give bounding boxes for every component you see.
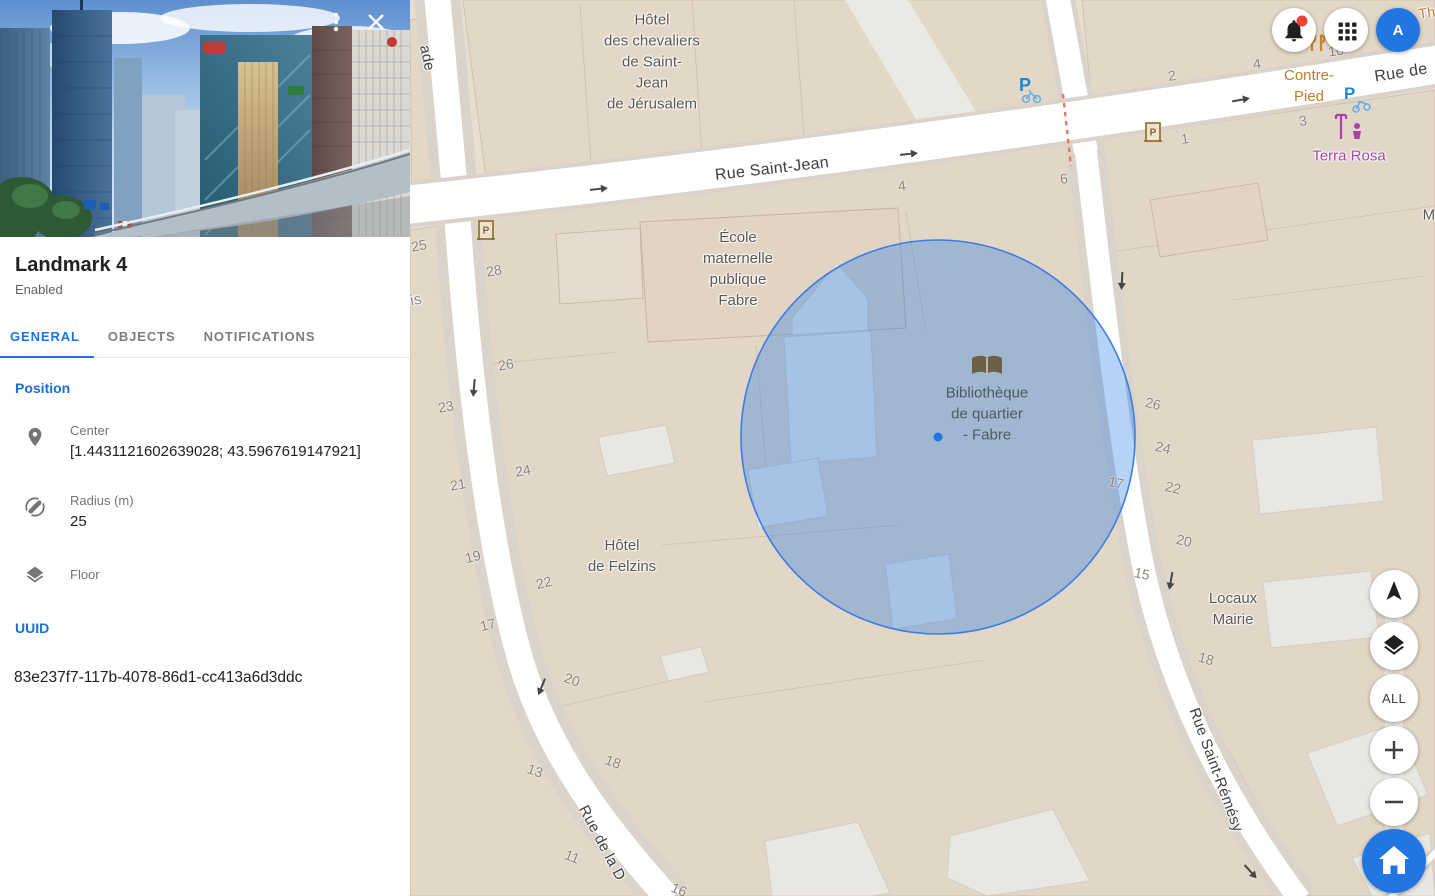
floor-label: Floor: [70, 566, 100, 583]
zoom-out-button[interactable]: [1370, 778, 1418, 826]
uuid-value: 83e237f7-117b-4078-86d1-cc413a6d3ddc: [14, 669, 410, 687]
center-label: Center: [70, 422, 361, 439]
avatar-button[interactable]: A: [1376, 8, 1420, 52]
tab-general[interactable]: GENERAL: [0, 315, 94, 357]
tab-bar: GENERAL OBJECTS NOTIFICATIONS: [0, 315, 410, 358]
close-icon: [362, 8, 390, 36]
center-row: Center [1.4431121602639028; 43.596761914…: [0, 422, 410, 462]
floor-row: Floor: [0, 562, 410, 586]
radius-label: Radius (m): [70, 492, 134, 509]
svg-text:P: P: [1019, 75, 1031, 95]
avatar-letter: A: [1393, 22, 1404, 39]
minus-icon: [1370, 778, 1418, 826]
sidebar-content: Position Center [1.4431121602639028; 43.…: [0, 358, 410, 687]
tab-general-label: GENERAL: [10, 329, 80, 344]
photo-close-button[interactable]: [362, 8, 390, 36]
sidebar: Landmark 4 Enabled GENERAL OBJECTS NOTIF…: [0, 0, 410, 896]
tab-notifications[interactable]: NOTIFICATIONS: [190, 315, 330, 357]
monument-icon: P: [1144, 123, 1162, 141]
all-button[interactable]: ALL: [1370, 674, 1418, 722]
notification-badge: [1297, 16, 1308, 27]
home-icon: [1362, 829, 1426, 893]
plus-icon: [1370, 726, 1418, 774]
bell-icon: [1272, 8, 1316, 52]
tab-objects[interactable]: OBJECTS: [94, 315, 190, 357]
application-window: P P P P: [0, 0, 1435, 896]
map[interactable]: P P P P: [410, 0, 1435, 896]
all-button-label: ALL: [1382, 691, 1406, 706]
landmark-status: Enabled: [15, 282, 394, 297]
landmark-center-dot: [934, 433, 943, 442]
landmark-title: Landmark 4: [15, 253, 394, 277]
map-pin-icon: [24, 425, 46, 449]
landmark-photo: [0, 0, 410, 237]
radius-value: 25: [70, 511, 134, 532]
radius-icon: [24, 495, 46, 519]
apps-button[interactable]: [1324, 8, 1368, 52]
tab-objects-label: OBJECTS: [108, 329, 176, 344]
active-tab-underline: [0, 356, 94, 359]
map-canvas[interactable]: P P P P: [410, 0, 1435, 896]
library-book-icon: [972, 356, 1002, 374]
radius-row: Radius (m) 25: [0, 492, 410, 532]
floor-layers-icon: [24, 562, 46, 586]
section-heading-position: Position: [15, 380, 410, 396]
layers-button[interactable]: [1370, 622, 1418, 670]
layers-icon: [1370, 622, 1418, 670]
svg-text:P: P: [483, 226, 490, 237]
navigation-arrow-icon: [1370, 570, 1418, 618]
monument-icon: P: [477, 221, 495, 239]
zoom-in-button[interactable]: [1370, 726, 1418, 774]
section-heading-uuid: UUID: [15, 620, 410, 636]
vertical-ellipsis-icon: [322, 8, 350, 36]
svg-text:P: P: [1150, 128, 1157, 139]
center-value: [1.4431121602639028; 43.5967619147921]: [70, 441, 361, 462]
notifications-button[interactable]: [1272, 8, 1316, 52]
compass-button[interactable]: [1370, 570, 1418, 618]
tab-notifications-label: NOTIFICATIONS: [204, 329, 316, 344]
apps-grid-icon: [1324, 8, 1368, 52]
photo-more-button[interactable]: [322, 8, 350, 36]
svg-text:P: P: [1344, 84, 1355, 103]
home-button[interactable]: [1362, 829, 1426, 893]
